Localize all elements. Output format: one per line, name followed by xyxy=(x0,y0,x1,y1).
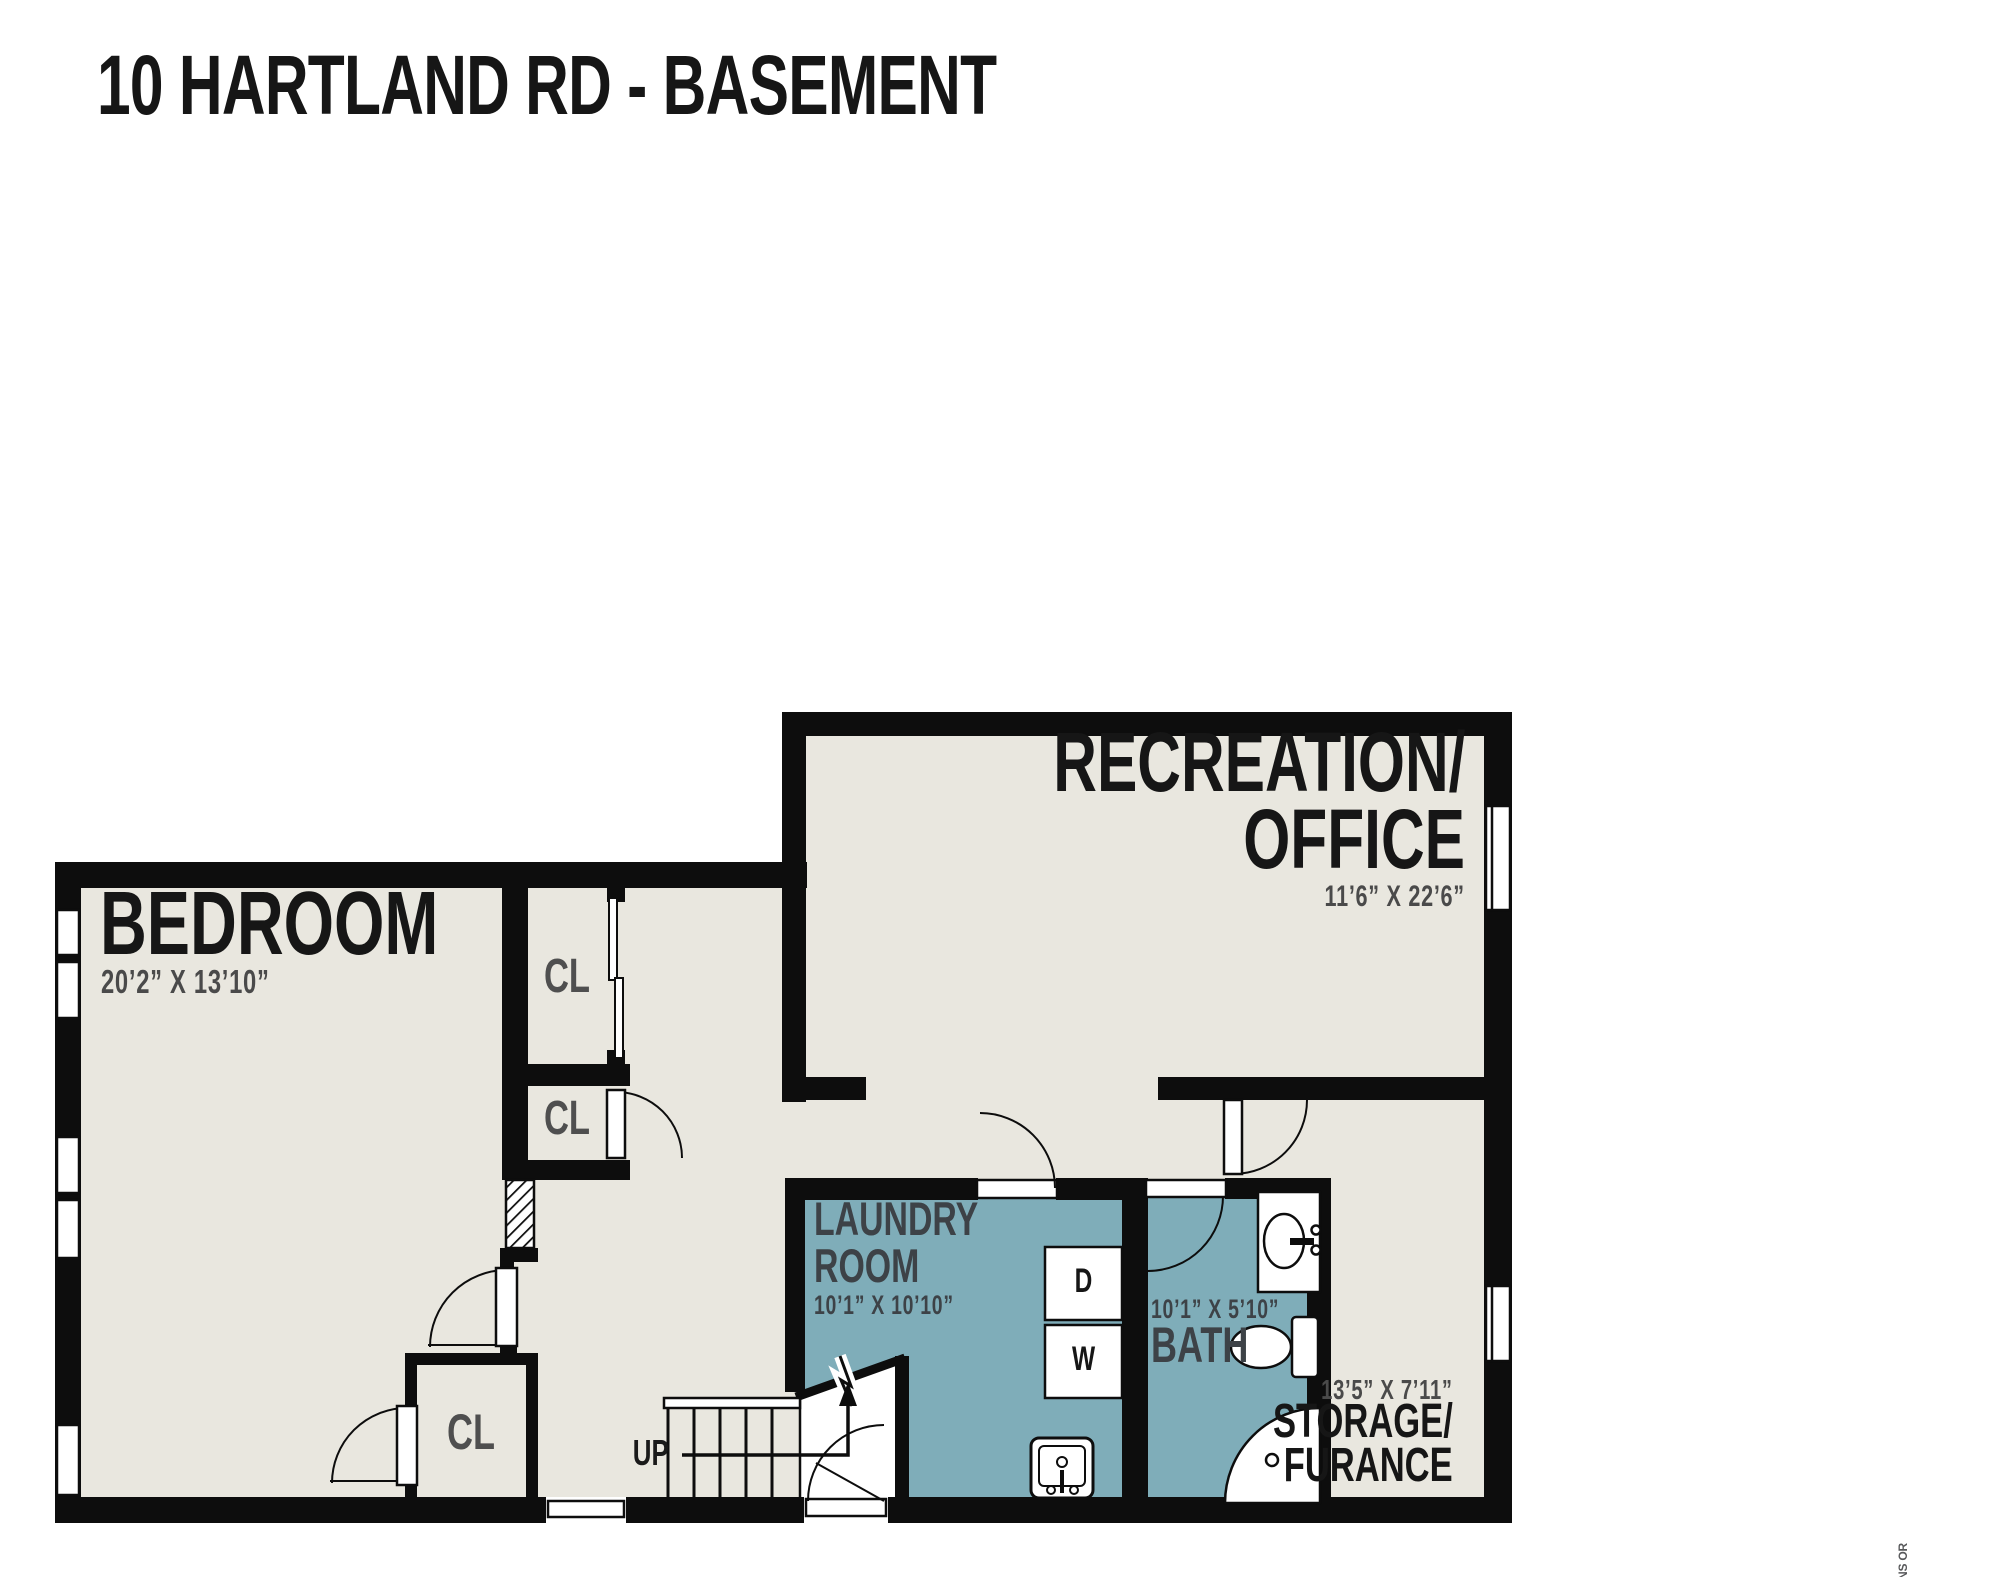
stairs-up-label: UP xyxy=(633,1435,668,1471)
dryer-label: D xyxy=(1056,1264,1111,1298)
bedroom-label: BEDROOM xyxy=(100,879,438,969)
laundry-label-line1: LAUNDRY xyxy=(814,1195,978,1242)
sink-icon xyxy=(1258,1192,1321,1292)
window-icon xyxy=(57,1200,79,1258)
laundry-dims: 10’1” X 10’10” xyxy=(814,1292,954,1319)
disclaimer: ALL IMAGES, DIMENSIONS, AND OTHER INFORM… xyxy=(1893,1543,1933,1577)
bedroom-dims: 20’2” X 13’10” xyxy=(101,965,270,998)
window-icon xyxy=(57,910,79,955)
utility-sink-icon xyxy=(1031,1438,1093,1498)
closet-label-3: CL xyxy=(441,1407,501,1457)
recreation-label-line2: OFFICE xyxy=(1243,797,1465,881)
floorplan-drawing xyxy=(0,0,1989,1577)
window-icon xyxy=(1486,1286,1510,1361)
window-icon xyxy=(57,1137,79,1193)
washer-label: W xyxy=(1056,1342,1111,1376)
disclaimer-line1: ALL IMAGES, DIMENSIONS, AND OTHER INFORM… xyxy=(1893,1543,1913,1577)
storage-label-line2: FURANCE xyxy=(1284,1442,1453,1490)
closet-label-2: CL xyxy=(537,1095,597,1143)
floorplan-page: 10 HARTLAND RD - BASEMENT BEDROOM 20’2” … xyxy=(0,0,1989,1577)
basement-window xyxy=(546,1497,626,1523)
closet-label-1: CL xyxy=(537,953,597,1001)
recreation-dims: 11’6” X 22’6” xyxy=(1325,882,1465,912)
disclaimer-line2: WARRANTIES, AND DISCLAIMS ANY AND ALL LI… xyxy=(1913,1543,1933,1577)
bath-label: BATH xyxy=(1151,1320,1248,1370)
hatched-chase xyxy=(506,1180,534,1248)
laundry-label-line2: ROOM xyxy=(814,1242,919,1289)
window-icon xyxy=(1486,806,1510,910)
window-icon xyxy=(57,962,79,1018)
page-title: 10 HARTLAND RD - BASEMENT xyxy=(97,43,996,127)
window-icon xyxy=(57,1425,79,1495)
